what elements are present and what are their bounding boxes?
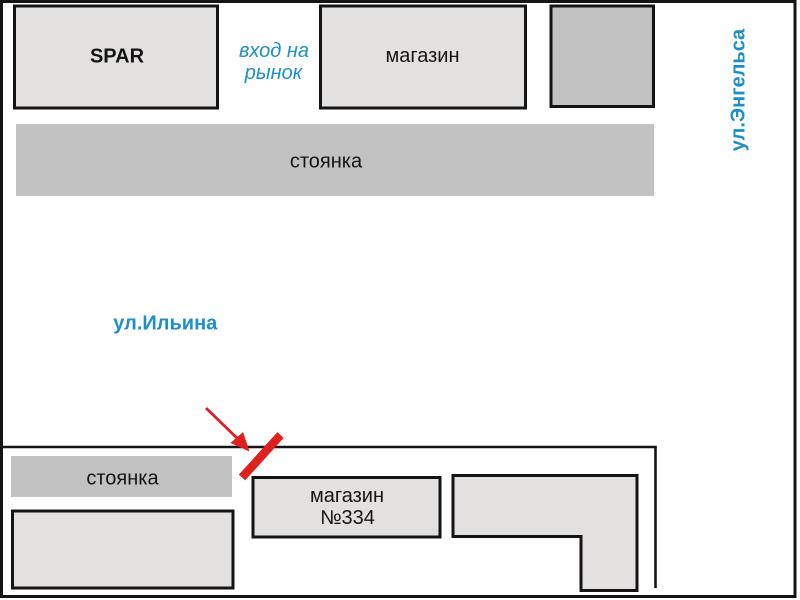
svg-text:магазин: магазин [310, 485, 384, 507]
svg-text:рынок: рынок [244, 62, 304, 84]
svg-text:стоянка: стоянка [86, 468, 159, 490]
svg-text:ул.Энгельса: ул.Энгельса [728, 28, 750, 151]
svg-text:№334: №334 [320, 507, 375, 529]
svg-text:магазин: магазин [385, 45, 459, 67]
svg-text:ул.Ильина: ул.Ильина [113, 313, 218, 335]
svg-text:вход на: вход на [239, 40, 309, 62]
svg-text:стоянка: стоянка [290, 151, 363, 173]
svg-text:SPAR: SPAR [90, 46, 145, 68]
